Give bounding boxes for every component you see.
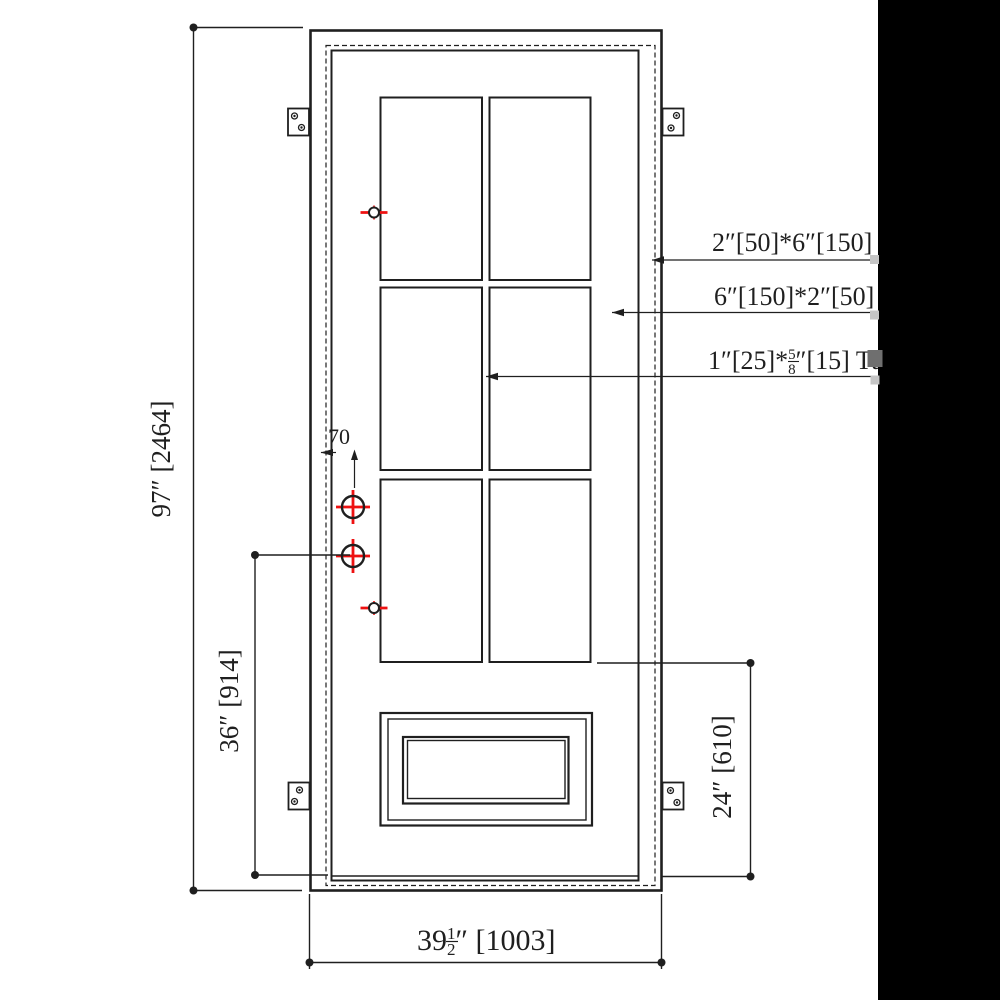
drawing-svg: 97″ [2464] 36″ [914] 24″ [610] 3912″ [10… bbox=[0, 0, 1000, 1000]
callout-stile-profile: 6″[150]*2″[50] bbox=[612, 282, 878, 316]
screw-mark-top bbox=[361, 206, 388, 220]
leader-arrow bbox=[612, 309, 624, 317]
panel-outer-molding bbox=[381, 713, 593, 826]
panel-molding-3 bbox=[403, 737, 569, 804]
selection-grip-middle[interactable] bbox=[870, 311, 879, 320]
panel-inner-field bbox=[408, 741, 566, 799]
glass-pane-top-right bbox=[490, 98, 591, 281]
selection-grip-bottom[interactable] bbox=[871, 376, 880, 385]
mounting-bracket-bottom-right bbox=[663, 783, 684, 810]
backset-label: 70 bbox=[328, 424, 350, 449]
mounting-bracket-bottom-left bbox=[289, 783, 310, 810]
selection-grip-top[interactable] bbox=[870, 255, 879, 264]
handle-prep-mark bbox=[336, 539, 370, 573]
backset-up-arrow bbox=[351, 450, 358, 461]
glass-pane-mid-right bbox=[490, 288, 591, 471]
deadbolt-prep-mark bbox=[336, 490, 370, 524]
door-assembly bbox=[288, 31, 684, 891]
leader-arrow bbox=[486, 373, 498, 381]
backset-left-arrow bbox=[321, 449, 334, 456]
lock-height-label: 36″ [914] bbox=[214, 649, 244, 752]
cad-door-drawing: 97″ [2464] 36″ [914] 24″ [610] 3912″ [10… bbox=[0, 0, 1000, 1000]
raised-bottom-panel bbox=[381, 713, 593, 826]
glass-grid bbox=[381, 98, 591, 663]
leader-arrow bbox=[652, 256, 664, 264]
glass-pane-bottom-left bbox=[381, 480, 483, 663]
black-crop-strip bbox=[878, 0, 1000, 1000]
jamb-profile-label: 2″[50]*6″[150] bbox=[712, 228, 872, 257]
glass-pane-top-left bbox=[381, 98, 483, 281]
selection-grip-dark[interactable] bbox=[868, 350, 883, 367]
callout-jamb-profile: 2″[50]*6″[150] bbox=[652, 228, 878, 264]
panel-molding-2 bbox=[388, 719, 586, 820]
door-width-label: 3912″ [1003] bbox=[417, 924, 555, 959]
bottom-rail-label: 24″ [610] bbox=[707, 715, 737, 818]
stile-profile-label: 6″[150]*2″[50] bbox=[714, 282, 874, 311]
dimension-door-width: 3912″ [1003] bbox=[306, 894, 666, 969]
callout-muntin-profile: 1″[25]*58″[15] Tu bbox=[486, 346, 884, 380]
glass-pane-bottom-right bbox=[490, 480, 591, 663]
screw-mark-bottom bbox=[361, 601, 388, 615]
mounting-bracket-top-left bbox=[288, 109, 309, 136]
mounting-brackets bbox=[288, 109, 684, 810]
dimension-lock-height: 36″ [914] bbox=[214, 551, 350, 879]
dimension-door-height: 97″ [2464] bbox=[146, 24, 303, 895]
glass-pane-mid-left bbox=[381, 288, 483, 471]
mounting-bracket-top-right bbox=[663, 109, 684, 136]
door-height-label: 97″ [2464] bbox=[146, 401, 176, 518]
door-outer-frame bbox=[311, 31, 662, 891]
dimension-bottom-rail: 24″ [610] bbox=[597, 659, 755, 881]
